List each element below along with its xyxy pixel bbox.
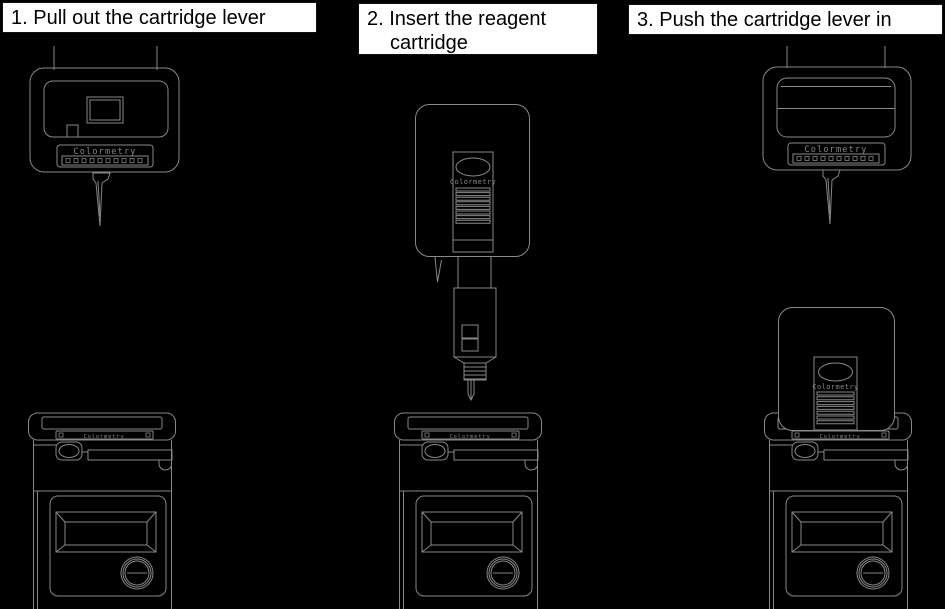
illustration-reagent-cartridge: Colormetry [416, 105, 530, 401]
cartridge-label-text: Colormetry [450, 178, 496, 186]
label-dots [66, 159, 142, 163]
cartridge-stripes [456, 188, 490, 223]
probe-tip [468, 380, 474, 400]
illustration-analyzer-top-lever-out: Colormetry [30, 46, 179, 226]
cartridge-lever [93, 173, 110, 226]
label-dots [797, 157, 873, 161]
illustration-analyzer-front-3 [765, 413, 912, 609]
illustration-analyzer-top-lever-in: Colormetry [763, 46, 911, 224]
illustration-cartridge-on-analyzer: Colormetry [779, 308, 895, 431]
illustration-analyzer-front-1 [29, 413, 176, 609]
instruction-diagram: Colormetry [0, 0, 945, 609]
illustration-analyzer-front-2 [395, 413, 542, 609]
cartridge-spike [435, 257, 442, 282]
cartridge-label-text: Colormetry [812, 383, 858, 391]
cartridge-lever [823, 170, 840, 224]
instruction-page: 1. Pull out the cartridge lever 2. Inser… [0, 0, 945, 609]
